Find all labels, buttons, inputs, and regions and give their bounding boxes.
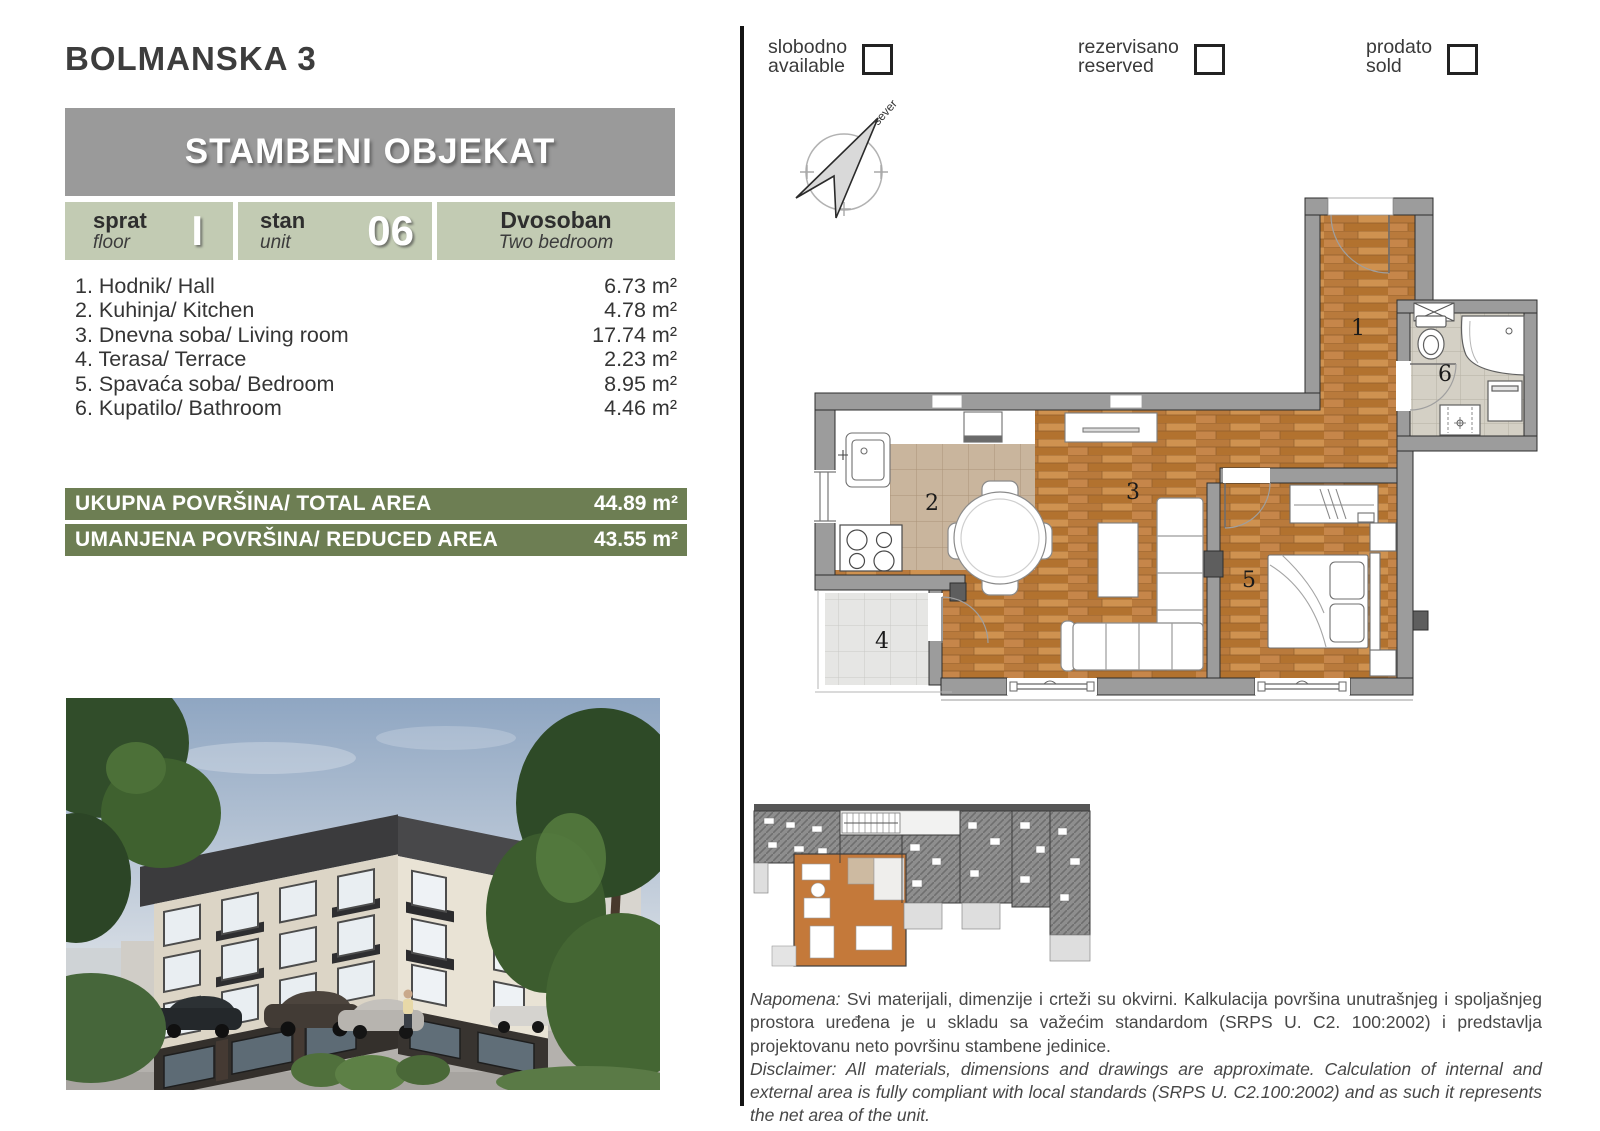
- unit-value: 06: [367, 207, 432, 255]
- main-floor-plan: 1 2 3 4 5 6: [812, 183, 1540, 715]
- room-area: 6.73 m²: [604, 274, 677, 299]
- room-row: 1. Hodnik/ Hall6.73 m²: [75, 274, 677, 299]
- room-area: 17.74 m²: [592, 323, 677, 348]
- room-label-terrace: 4: [875, 629, 889, 654]
- room-label-bedroom: 5: [1242, 568, 1256, 593]
- floor-label-sr: sprat: [93, 209, 147, 232]
- banner-title: STAMBENI OBJEKAT: [185, 132, 556, 172]
- bathroom-sink-icon: [1440, 405, 1480, 435]
- reserved-checkbox[interactable]: [1194, 44, 1225, 75]
- type-name-en: Two bedroom: [499, 233, 614, 254]
- total-area-bar: UKUPNA POVRŠINA/ TOTAL AREA 44.89 m²: [65, 488, 687, 520]
- reduced-area-value: 43.55 m²: [594, 528, 687, 552]
- legend-label-en: available: [768, 57, 847, 76]
- room-area: 4.78 m²: [604, 298, 677, 323]
- banner: STAMBENI OBJEKAT: [65, 108, 675, 196]
- washing-machine-icon: [1488, 381, 1522, 421]
- bedroom-window: [1255, 678, 1350, 695]
- kitchen-window: [812, 470, 838, 523]
- floor-label-en: floor: [93, 233, 147, 253]
- coffee-table: [1098, 523, 1138, 597]
- apartment-type-box: Dvosoban Two bedroom: [437, 202, 675, 260]
- building-photo: [66, 698, 660, 1090]
- room-area: 2.23 m²: [604, 347, 677, 372]
- legend-label-en: sold: [1366, 57, 1432, 76]
- room-row: 5. Spavaća soba/ Bedroom8.95 m²: [75, 372, 677, 397]
- tv-cabinet: [1065, 413, 1157, 442]
- person: [403, 990, 413, 1029]
- legend-item-reserved: rezervisano reserved: [1078, 38, 1225, 76]
- column-divider: [740, 26, 744, 1106]
- room-label-hall: 1: [1351, 316, 1365, 341]
- room-row: 2. Kuhinja/ Kitchen4.78 m²: [75, 299, 677, 324]
- wardrobe-icon: [1290, 485, 1378, 523]
- legend-label-en: reserved: [1078, 57, 1179, 76]
- room-list: 1. Hodnik/ Hall6.73 m² 2. Kuhinja/ Kitch…: [75, 274, 677, 421]
- room-label-kitchen: 2: [925, 491, 939, 516]
- room-area: 8.95 m²: [604, 372, 677, 397]
- note-sr: Napomena: Svi materijali, dimenzije i cr…: [750, 988, 1542, 1058]
- room-row: 6. Kupatilo/ Bathroom4.46 m²: [75, 397, 677, 422]
- unit-label-en: unit: [260, 233, 305, 253]
- unit-info-box: stan unit 06: [238, 202, 432, 260]
- mini-floor-plan: [752, 798, 1092, 970]
- room-area: 4.46 m²: [604, 396, 677, 421]
- legend-item-sold: prodato sold: [1366, 38, 1478, 76]
- room-label-living: 3: [1126, 480, 1140, 505]
- toilet-icon: [1416, 316, 1446, 359]
- note-en: Disclaimer: All materials, dimensions an…: [750, 1058, 1542, 1128]
- floor-info-box: sprat floor I: [65, 202, 233, 260]
- room-row: 3. Dnevna soba/ Living room17.74 m²: [75, 323, 677, 348]
- reduced-area-bar: UMANJENA POVRŠINA/ REDUCED AREA 43.55 m²: [65, 524, 687, 556]
- north-label: sever: [870, 97, 900, 128]
- room-label-bathroom: 6: [1438, 362, 1452, 387]
- sold-checkbox[interactable]: [1447, 44, 1478, 75]
- living-window: [1007, 678, 1097, 695]
- total-area-value: 44.89 m²: [594, 492, 687, 516]
- stove-icon: [840, 525, 902, 571]
- room-row: 4. Terasa/ Terrace2.23 m²: [75, 348, 677, 373]
- page-title: BOLMANSKA 3: [65, 40, 317, 78]
- unit-label-sr: stan: [260, 209, 305, 232]
- disclaimer-notes: Napomena: Svi materijali, dimenzije i cr…: [750, 988, 1542, 1128]
- stairwell: [842, 813, 900, 833]
- available-checkbox[interactable]: [862, 44, 893, 75]
- brochure-page: BOLMANSKA 3 STAMBENI OBJEKAT sprat floor…: [0, 0, 1600, 1131]
- legend-item-available: slobodno available: [768, 38, 893, 76]
- type-name-sr: Dvosoban: [500, 208, 611, 233]
- floor-value: I: [191, 207, 233, 255]
